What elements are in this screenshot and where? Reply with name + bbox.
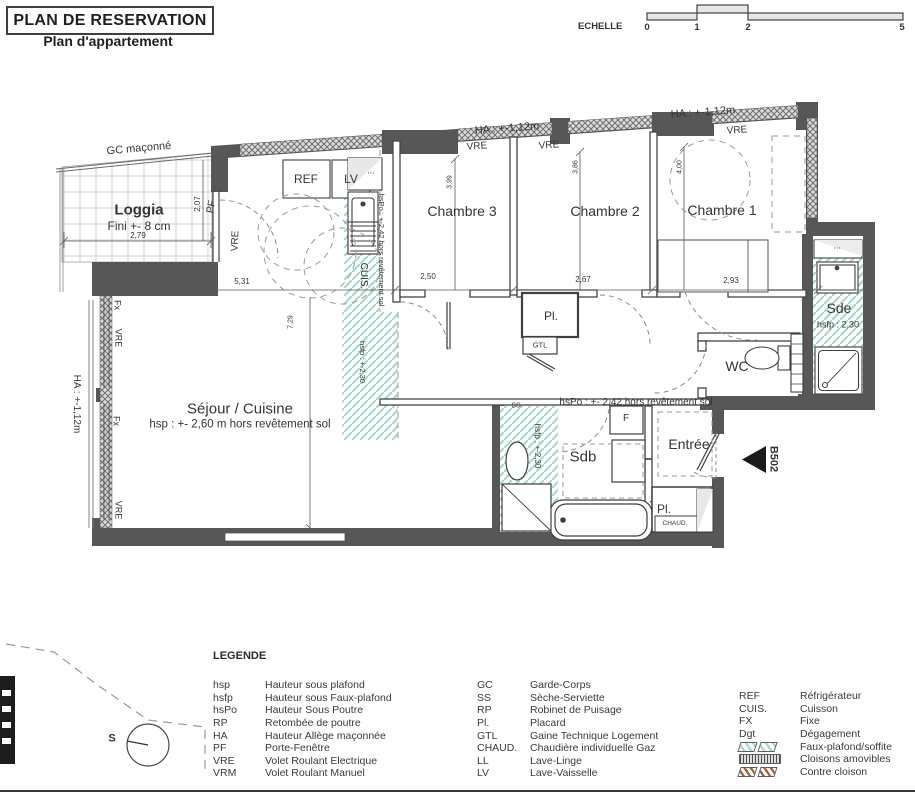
kitchen-hspo-note: hsPo : +-2,42 hors revêtement sol <box>377 194 385 307</box>
cloisons-amovibles-swatch <box>739 753 800 765</box>
legend-row: FXFixe <box>739 715 892 728</box>
legend-row: HAHauteur Allège maçonnée <box>213 729 392 742</box>
legend-row: CHAUD.Chaudière individuelle Gaz <box>477 742 658 755</box>
dim-279: 2,79 <box>130 232 146 240</box>
dim-267: 2,67 <box>575 276 591 284</box>
legend-heading: LEGENDE <box>213 650 266 662</box>
legend-column-2: GCGarde-Corps SSSèche-Serviette RPRobine… <box>477 679 658 780</box>
fx-label-2: Fx <box>112 416 121 426</box>
compass <box>127 724 169 766</box>
entree-label: Entrée <box>668 437 709 451</box>
legend-row: RPRetombée de poutre <box>213 717 392 730</box>
vre-left-label-1: VRE <box>114 329 123 348</box>
vre-left-label-2: VRE <box>114 501 123 520</box>
faux-plafond-soffite-swatch <box>739 741 800 753</box>
wc-label: WC <box>725 359 748 373</box>
dim-207: 2,07 <box>194 196 202 212</box>
legend-row: PFPorte-Fenêtre <box>213 742 392 755</box>
sde-label: Sde <box>827 301 852 315</box>
scale-tick-0: 0 <box>644 22 649 33</box>
dim-729: 7,29 <box>288 315 295 329</box>
chambre1-label: Chambre 1 <box>687 203 756 217</box>
vre-pf-label: VRE <box>230 230 241 251</box>
floorplan-drawing <box>0 0 915 800</box>
site-mini-plan <box>0 644 205 770</box>
sde-dots: ... <box>833 242 841 251</box>
legend-row: RPRobinet de Puisage <box>477 704 658 717</box>
legend-row: REFRéfrigérateur <box>739 690 892 703</box>
sdb-label: Sdb <box>570 450 597 465</box>
fx-label-1: Fx <box>113 300 122 310</box>
legend-row: GTLGaine Technique Logement <box>477 729 658 742</box>
corridor-hspo-note: hsPo : +- 2,42 hors revêtement sol <box>559 398 712 408</box>
dim-531: 5,31 <box>234 278 250 286</box>
floor-plan-page: PLAN DE RESERVATION Plan d'appartement E… <box>0 0 915 800</box>
vre-ch3-label: VRE <box>466 141 487 152</box>
ll-f-label: F <box>623 414 629 424</box>
gtl-label: GTL <box>533 341 548 349</box>
ref-label: REF <box>294 173 318 185</box>
vre-ch2-label: VRE <box>538 140 559 151</box>
legend-column-1: hspHauteur sous plafond hsfpHauteur sous… <box>213 679 392 780</box>
dim-400: 4,00 <box>677 160 684 174</box>
sde-hsfp-note: hsfp : 2,30 <box>817 321 859 330</box>
page-bottom-rule <box>0 790 915 792</box>
legend-row: hspHauteur sous plafond <box>213 679 392 692</box>
sdb-hsfp-note: hsfp : +-2,30 <box>533 424 541 469</box>
kitchen-hsfp-note: hsfp : +-2,30 <box>358 341 366 383</box>
page-subtitle: Plan d'appartement <box>6 33 210 49</box>
cuis-label: CUIS. <box>358 263 368 290</box>
placard-gtl <box>522 293 578 371</box>
sejour-label: Séjour / Cuisine <box>187 402 293 417</box>
compass-south-label: S <box>108 734 115 745</box>
sdb-ss-label: SS <box>511 403 520 410</box>
legend-row: hsfpHauteur sous Faux-plafond <box>213 692 392 705</box>
page-title: PLAN DE RESERVATION <box>6 6 214 35</box>
legend-row: VREVolet Roulant Electrique <box>213 755 392 768</box>
scale-label: ECHELLE <box>578 21 622 32</box>
chaud-label: CHAUD. <box>663 521 688 528</box>
dim-386: 3,86 <box>573 160 580 174</box>
interior-walls <box>380 132 806 532</box>
entrance-arrow <box>742 446 766 473</box>
scale-tick-2: 2 <box>745 22 750 33</box>
contre-cloison-swatch <box>739 766 800 778</box>
legend-row: VRMVolet Roulant Manuel <box>213 767 392 780</box>
dim-399: 3,99 <box>447 175 454 189</box>
chambre2-label: Chambre 2 <box>570 204 639 218</box>
ha-left-label: HA : +-1,12m <box>71 375 81 434</box>
dim-293: 2,93 <box>723 277 739 285</box>
vre-ch1-label: VRE <box>726 125 747 136</box>
scale-bar <box>647 5 903 20</box>
lv-label: LV <box>344 173 358 185</box>
unit-number-label: B502 <box>768 446 779 472</box>
kitchen-dots: ... <box>367 167 375 176</box>
legend-row: hsPoHauteur Sous Poutre <box>213 704 392 717</box>
chambre3-label: Chambre 3 <box>427 204 496 218</box>
legend-row: LLLave-Linge <box>477 755 658 768</box>
legend-row: DgtDégagement <box>739 728 892 741</box>
scale-tick-1: 1 <box>694 22 699 33</box>
placard-ch2-label: Pl. <box>544 310 558 322</box>
legend-row: Contre cloison <box>739 766 892 779</box>
scale-tick-5: 5 <box>899 22 904 33</box>
loggia-label: Loggia <box>114 203 163 218</box>
legend-row: GCGarde-Corps <box>477 679 658 692</box>
dim-250: 2,50 <box>420 273 436 281</box>
wc-fixtures <box>745 334 803 392</box>
legend-row: Cloisons amovibles <box>739 753 892 766</box>
legend-row: LVLave-Vaisselle <box>477 767 658 780</box>
legend-row: CUIS.Cuisson <box>739 703 892 716</box>
legend-row: Pl.Placard <box>477 717 658 730</box>
legend-row: Faux-plafond/soffite <box>739 740 892 753</box>
sejour-hsp-note: hsp : +- 2,60 m hors revêtement sol <box>149 419 330 431</box>
legend-row: SSSèche-Serviette <box>477 692 658 705</box>
placard-entree-label: Pl. <box>657 503 671 515</box>
legend-column-3: REFRéfrigérateur CUIS.Cuisson FXFixe Dgt… <box>739 690 892 778</box>
